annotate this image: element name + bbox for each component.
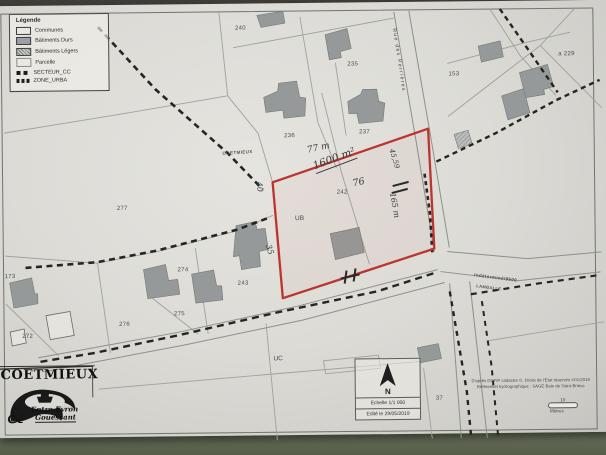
parcelle-swatch-icon (16, 58, 31, 67)
secteur-cc-swatch-icon (16, 70, 29, 74)
legend-item-communes: Communes (16, 26, 104, 35)
legend-item-label: Bâtiments Durs (35, 37, 73, 43)
parcel-number: 237 (359, 129, 370, 135)
scale-box: N Echelle 1/1 000 Edité le 29/05/2019 (354, 358, 421, 421)
parcel-number: 276 (119, 322, 130, 328)
parcel-number: a 229 (558, 51, 575, 57)
logo-text-line2: Gouessant (35, 412, 76, 422)
north-arrow-cell: N (355, 359, 419, 398)
parcel-number: 272 (22, 334, 33, 340)
north-letter: N (385, 387, 391, 396)
parcel-number: 37 (436, 396, 443, 402)
parcel-number: 240 (235, 26, 246, 32)
batiments-durs-swatch-icon (16, 37, 31, 45)
legend-item-batiments-legers: Bâtiments Légers (16, 47, 104, 56)
svg-text:&: & (7, 404, 25, 427)
zone-urba-swatch-icon (17, 79, 30, 83)
community-logo: & Entre Evron Gouessant (5, 382, 83, 427)
legend: Légende Communes Bâtiments Durs Bâtiment… (9, 13, 110, 92)
parcel-number: 173 (5, 274, 16, 280)
scale-bar-unit: Mètres (550, 409, 564, 414)
parcel-number: 153 (448, 71, 459, 77)
handwritten-left-measure-top: 40 (255, 181, 265, 192)
scale-bar: 10 Mètres (548, 397, 592, 414)
stamp-commune-name: COETMIEUX (0, 366, 95, 383)
zone-label-uc: UC (273, 355, 282, 362)
legend-item-zone-urba: ZONE_URBA (17, 77, 105, 84)
legend-title: Légende (16, 17, 104, 24)
legend-item-parcelle: Parcelle (16, 57, 104, 67)
legend-item-label: Communes (35, 27, 63, 33)
legend-item-label: Bâtiments Légers (35, 48, 78, 54)
parcel-number: 275 (174, 311, 185, 317)
commune-stamp: COETMIEUX & Entre Evron Gouessant (0, 365, 95, 427)
scale-text: Echelle 1/1 000 (356, 397, 420, 409)
parcel-number: 236 (284, 133, 295, 139)
legend-item-secteur-cc: SECTEUR_CC (16, 69, 104, 76)
legend-item-label: SECTEUR_CC (33, 69, 70, 75)
communes-swatch-icon (16, 26, 31, 34)
parcel-number: 277 (117, 206, 128, 212)
map-document: Légende Communes Bâtiments Durs Bâtiment… (0, 0, 606, 438)
credits: D'après DGFiP cadastre ©, Droits de l'Et… (462, 377, 600, 391)
parcel-number: 242 (337, 190, 348, 196)
batiments-legers-swatch-icon (16, 47, 31, 55)
photo-background: Légende Communes Bâtiments Durs Bâtiment… (0, 0, 606, 455)
parcel-number: 235 (347, 61, 358, 67)
legend-item-label: Parcelle (35, 59, 55, 65)
legend-item-batiments-durs: Bâtiments Durs (16, 36, 104, 45)
edition-date: Edité le 29/05/2019 (356, 408, 420, 420)
parcel-number: 243 (238, 281, 249, 287)
legend-item-label: ZONE_URBA (34, 77, 68, 83)
zone-label-ub: UB (295, 215, 304, 222)
parcel-number: 274 (177, 267, 188, 273)
